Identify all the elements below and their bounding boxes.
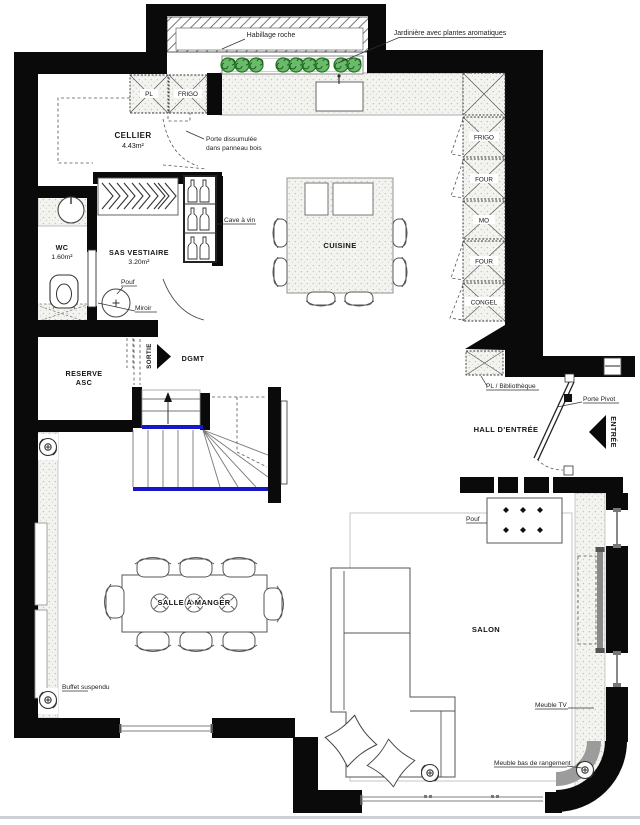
counter-sink bbox=[316, 82, 363, 111]
label-sortie: SORTIE bbox=[146, 343, 153, 368]
dining-chair bbox=[221, 632, 257, 652]
spotlight bbox=[577, 762, 594, 779]
label-salle-a-manger: SALLE À MANGER bbox=[157, 598, 230, 607]
dining-chair bbox=[135, 632, 171, 652]
label-miroir: Miroir bbox=[135, 305, 152, 312]
dining-set bbox=[35, 523, 284, 698]
dining-chair bbox=[178, 558, 214, 578]
tv-screen bbox=[597, 549, 603, 651]
page-footer-line bbox=[0, 816, 640, 819]
stair-edge-blue-upper bbox=[142, 425, 203, 429]
label-jardiniere: Jardinière avec plantes aromatiques bbox=[394, 30, 507, 37]
buffet-suspendu-left bbox=[35, 610, 47, 698]
spotlight bbox=[40, 692, 57, 709]
label-sas: SAS VESTIAIRE bbox=[109, 248, 169, 257]
appliance-congel: CONGEL bbox=[471, 300, 498, 307]
island-chair bbox=[306, 292, 336, 306]
mirror bbox=[88, 250, 96, 307]
appliance-four-1: FOUR bbox=[475, 177, 493, 184]
dining-chair bbox=[178, 632, 214, 652]
salon-furniture bbox=[322, 498, 605, 789]
label-reserve-1: RESERVE bbox=[65, 369, 102, 378]
island-sink bbox=[305, 183, 328, 215]
island-chair bbox=[393, 218, 407, 248]
label-wc: WC bbox=[56, 243, 69, 252]
label-reserve-2: ASC bbox=[76, 378, 92, 387]
sas-door-arc bbox=[163, 279, 204, 320]
dining-chair bbox=[221, 558, 257, 578]
label-meuble-tv: Meuble TV bbox=[535, 702, 567, 709]
cabinet-pl-label: PL bbox=[145, 91, 153, 98]
entrance bbox=[534, 374, 606, 475]
label-porte-dissimulee-1: Porte dissumulée bbox=[206, 136, 257, 143]
label-buffet-suspendu: Buffet suspendu bbox=[62, 684, 110, 691]
appliance-mo: MO bbox=[479, 218, 489, 225]
buffet-suspendu-left bbox=[35, 523, 47, 605]
dining-chair bbox=[135, 558, 171, 578]
spotlight bbox=[422, 765, 439, 782]
toilet bbox=[50, 275, 78, 308]
label-cellier-area: 4.43m² bbox=[122, 143, 144, 150]
label-hall: HALL D'ENTRÉE bbox=[474, 425, 539, 434]
pivot-hinge bbox=[564, 394, 572, 402]
label-porte-pivot: Porte Pivot bbox=[583, 396, 615, 403]
label-cuisine: CUISINE bbox=[323, 241, 356, 250]
island-chair bbox=[344, 292, 374, 306]
island-cooktop bbox=[333, 183, 373, 215]
island-chair bbox=[273, 218, 287, 248]
label-pl-bibliotheque: PL / Bibliothèque bbox=[486, 383, 536, 390]
label-cave-a-vin: Cave à vin bbox=[224, 217, 255, 224]
label-pouf-salon: Pouf bbox=[466, 516, 480, 523]
walls bbox=[14, 4, 635, 813]
island-chair bbox=[273, 257, 287, 287]
label-sas-area: 3.20m² bbox=[128, 259, 150, 266]
label-dgmt: DGMT bbox=[182, 354, 205, 363]
appliance-frigo: FRIGO bbox=[474, 135, 494, 142]
island-chair bbox=[393, 257, 407, 287]
floor-plan-page: PL FRIGO FRIGO FOUR MO FOUR CONGEL bbox=[0, 0, 640, 825]
cabinet-frigo-label: FRIGO bbox=[178, 91, 198, 98]
stair-edge-blue-lower bbox=[133, 487, 268, 491]
label-cellier: CELLIER bbox=[114, 131, 151, 140]
label-habillage-roche: Habillage roche bbox=[247, 32, 296, 39]
sortie-arrow bbox=[157, 344, 171, 369]
stair-door-panel bbox=[281, 401, 287, 484]
floor-plan-svg: PL FRIGO FRIGO FOUR MO FOUR CONGEL bbox=[0, 0, 640, 825]
label-pouf-sas: Pouf bbox=[121, 279, 135, 286]
label-porte-dissimulee-2: dans panneau bois bbox=[206, 145, 262, 152]
entree-arrow bbox=[589, 415, 606, 449]
appliance-four-2: FOUR bbox=[475, 259, 493, 266]
label-meuble-bas: Meuble bas de rangement bbox=[494, 760, 571, 767]
label-wc-area: 1.60m² bbox=[51, 254, 73, 261]
dining-chair bbox=[264, 586, 284, 622]
spotlight bbox=[40, 439, 57, 456]
planter bbox=[221, 56, 363, 74]
dining-chair bbox=[105, 584, 125, 620]
pouf-salon-rect bbox=[487, 498, 562, 543]
label-salon: SALON bbox=[472, 625, 500, 634]
label-entree: ENTRÉE bbox=[609, 416, 618, 448]
